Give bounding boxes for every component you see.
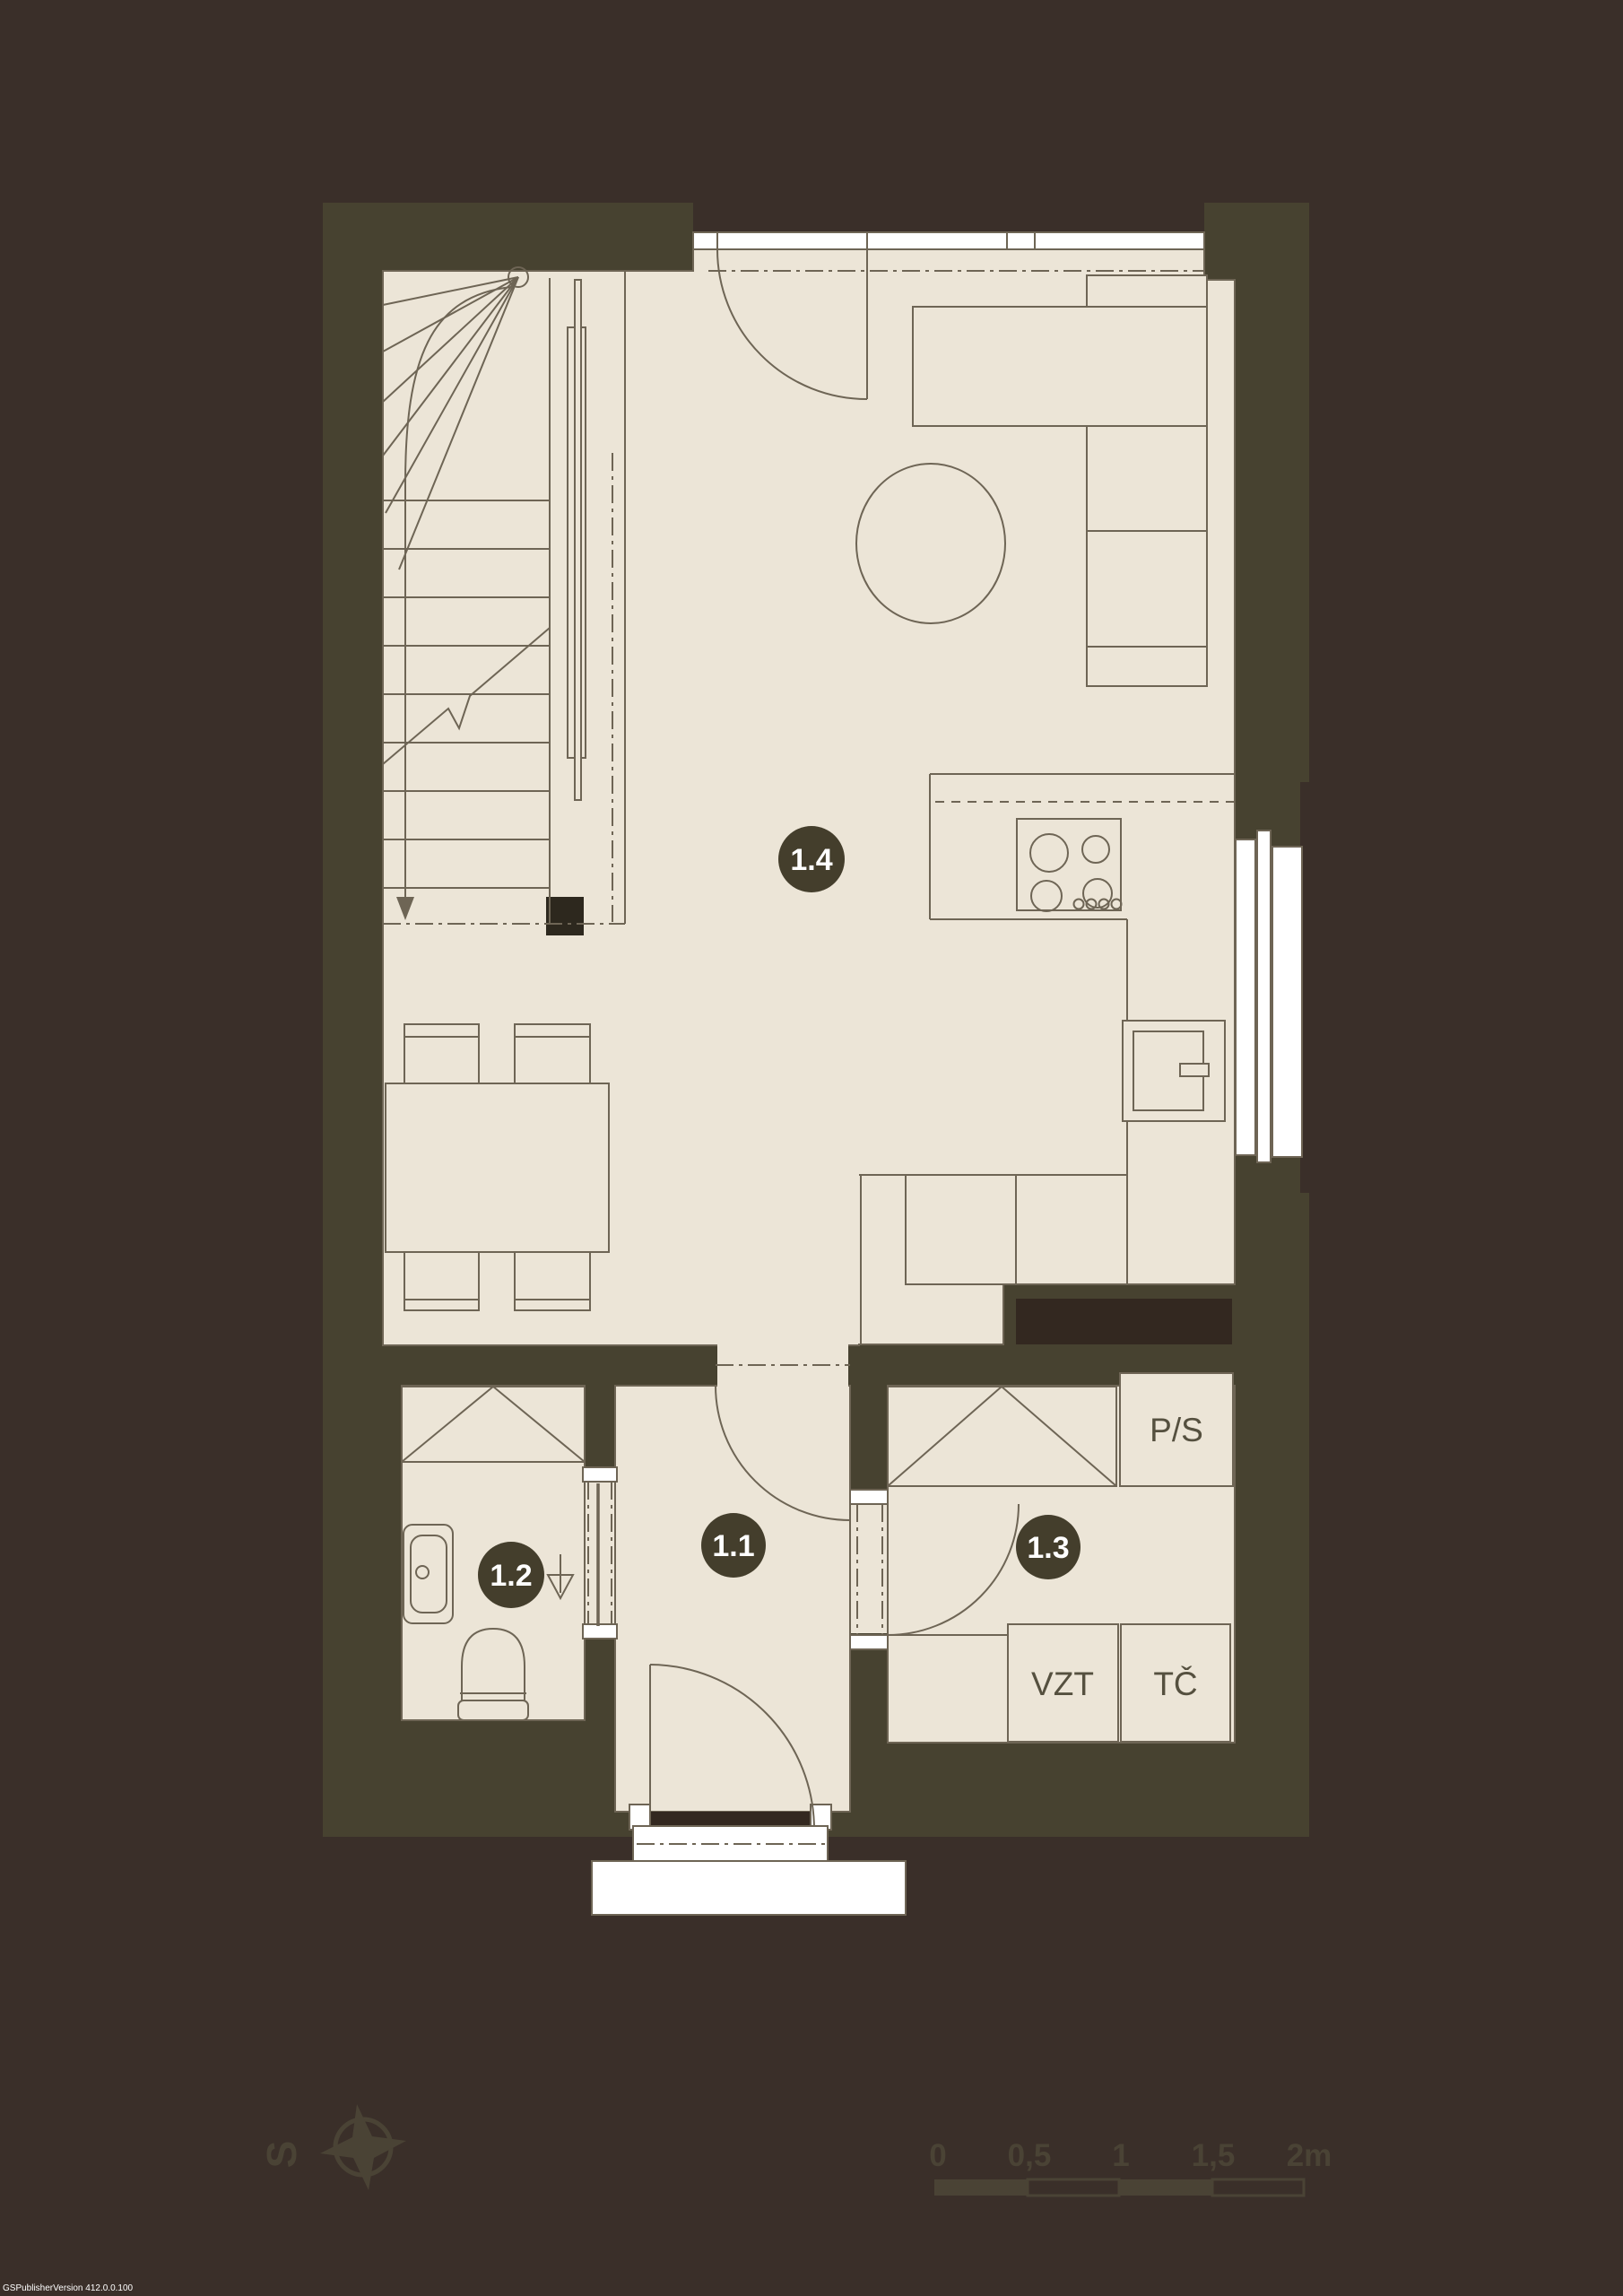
floor-plan-canvas: 1.4 1.1 1.2 1.3 P/S VZT TČ S 0 0,5 1 1,5…: [0, 0, 1623, 2296]
entry-threshold: [648, 1812, 812, 1826]
entry-landing: [592, 1861, 906, 1915]
scale-tick-2m: 2m: [1287, 2138, 1332, 2173]
chair: [515, 1024, 590, 1083]
top-glazing-exterior: [693, 203, 1204, 232]
room-number-living: 1.4: [790, 843, 832, 877]
stair-core-cut: [546, 897, 584, 935]
scale-tick-15: 1,5: [1192, 2138, 1236, 2173]
scale-tick-1: 1: [1112, 2138, 1129, 2173]
chair: [515, 1252, 590, 1310]
scale-tick-0: 0: [929, 2138, 946, 2173]
watermark-text: GSPublisherVersion 412.0.0.100: [3, 2283, 134, 2293]
east-window-inner: [1236, 839, 1255, 1155]
label-heat-pump: TČ: [1153, 1665, 1197, 1702]
room-number-hall: 1.1: [712, 1529, 754, 1563]
room-number-bathroom: 1.2: [490, 1559, 532, 1593]
east-window-mid: [1257, 831, 1271, 1162]
compass-north-letter: S: [258, 2141, 305, 2169]
room-number-tech: 1.3: [1027, 1531, 1069, 1565]
kitchen-wall-niche: [1016, 1299, 1232, 1344]
label-washer-dryer: P/S: [1150, 1412, 1203, 1448]
stove-handle: [1180, 1064, 1209, 1076]
north-window-band: [693, 232, 1204, 249]
coffee-table: [856, 464, 1005, 623]
east-window-outer: [1272, 847, 1302, 1157]
wood-stove: [1123, 1021, 1225, 1121]
dining-table: [386, 1083, 609, 1252]
cooktop: [1017, 819, 1122, 911]
scale-tick-05: 0,5: [1008, 2138, 1052, 2173]
toilet: [458, 1629, 528, 1720]
stair-handrail-inner: [575, 280, 581, 800]
chair: [404, 1024, 479, 1083]
chair: [404, 1252, 479, 1310]
label-ventilation: VZT: [1031, 1665, 1094, 1702]
washbasin: [404, 1525, 453, 1623]
